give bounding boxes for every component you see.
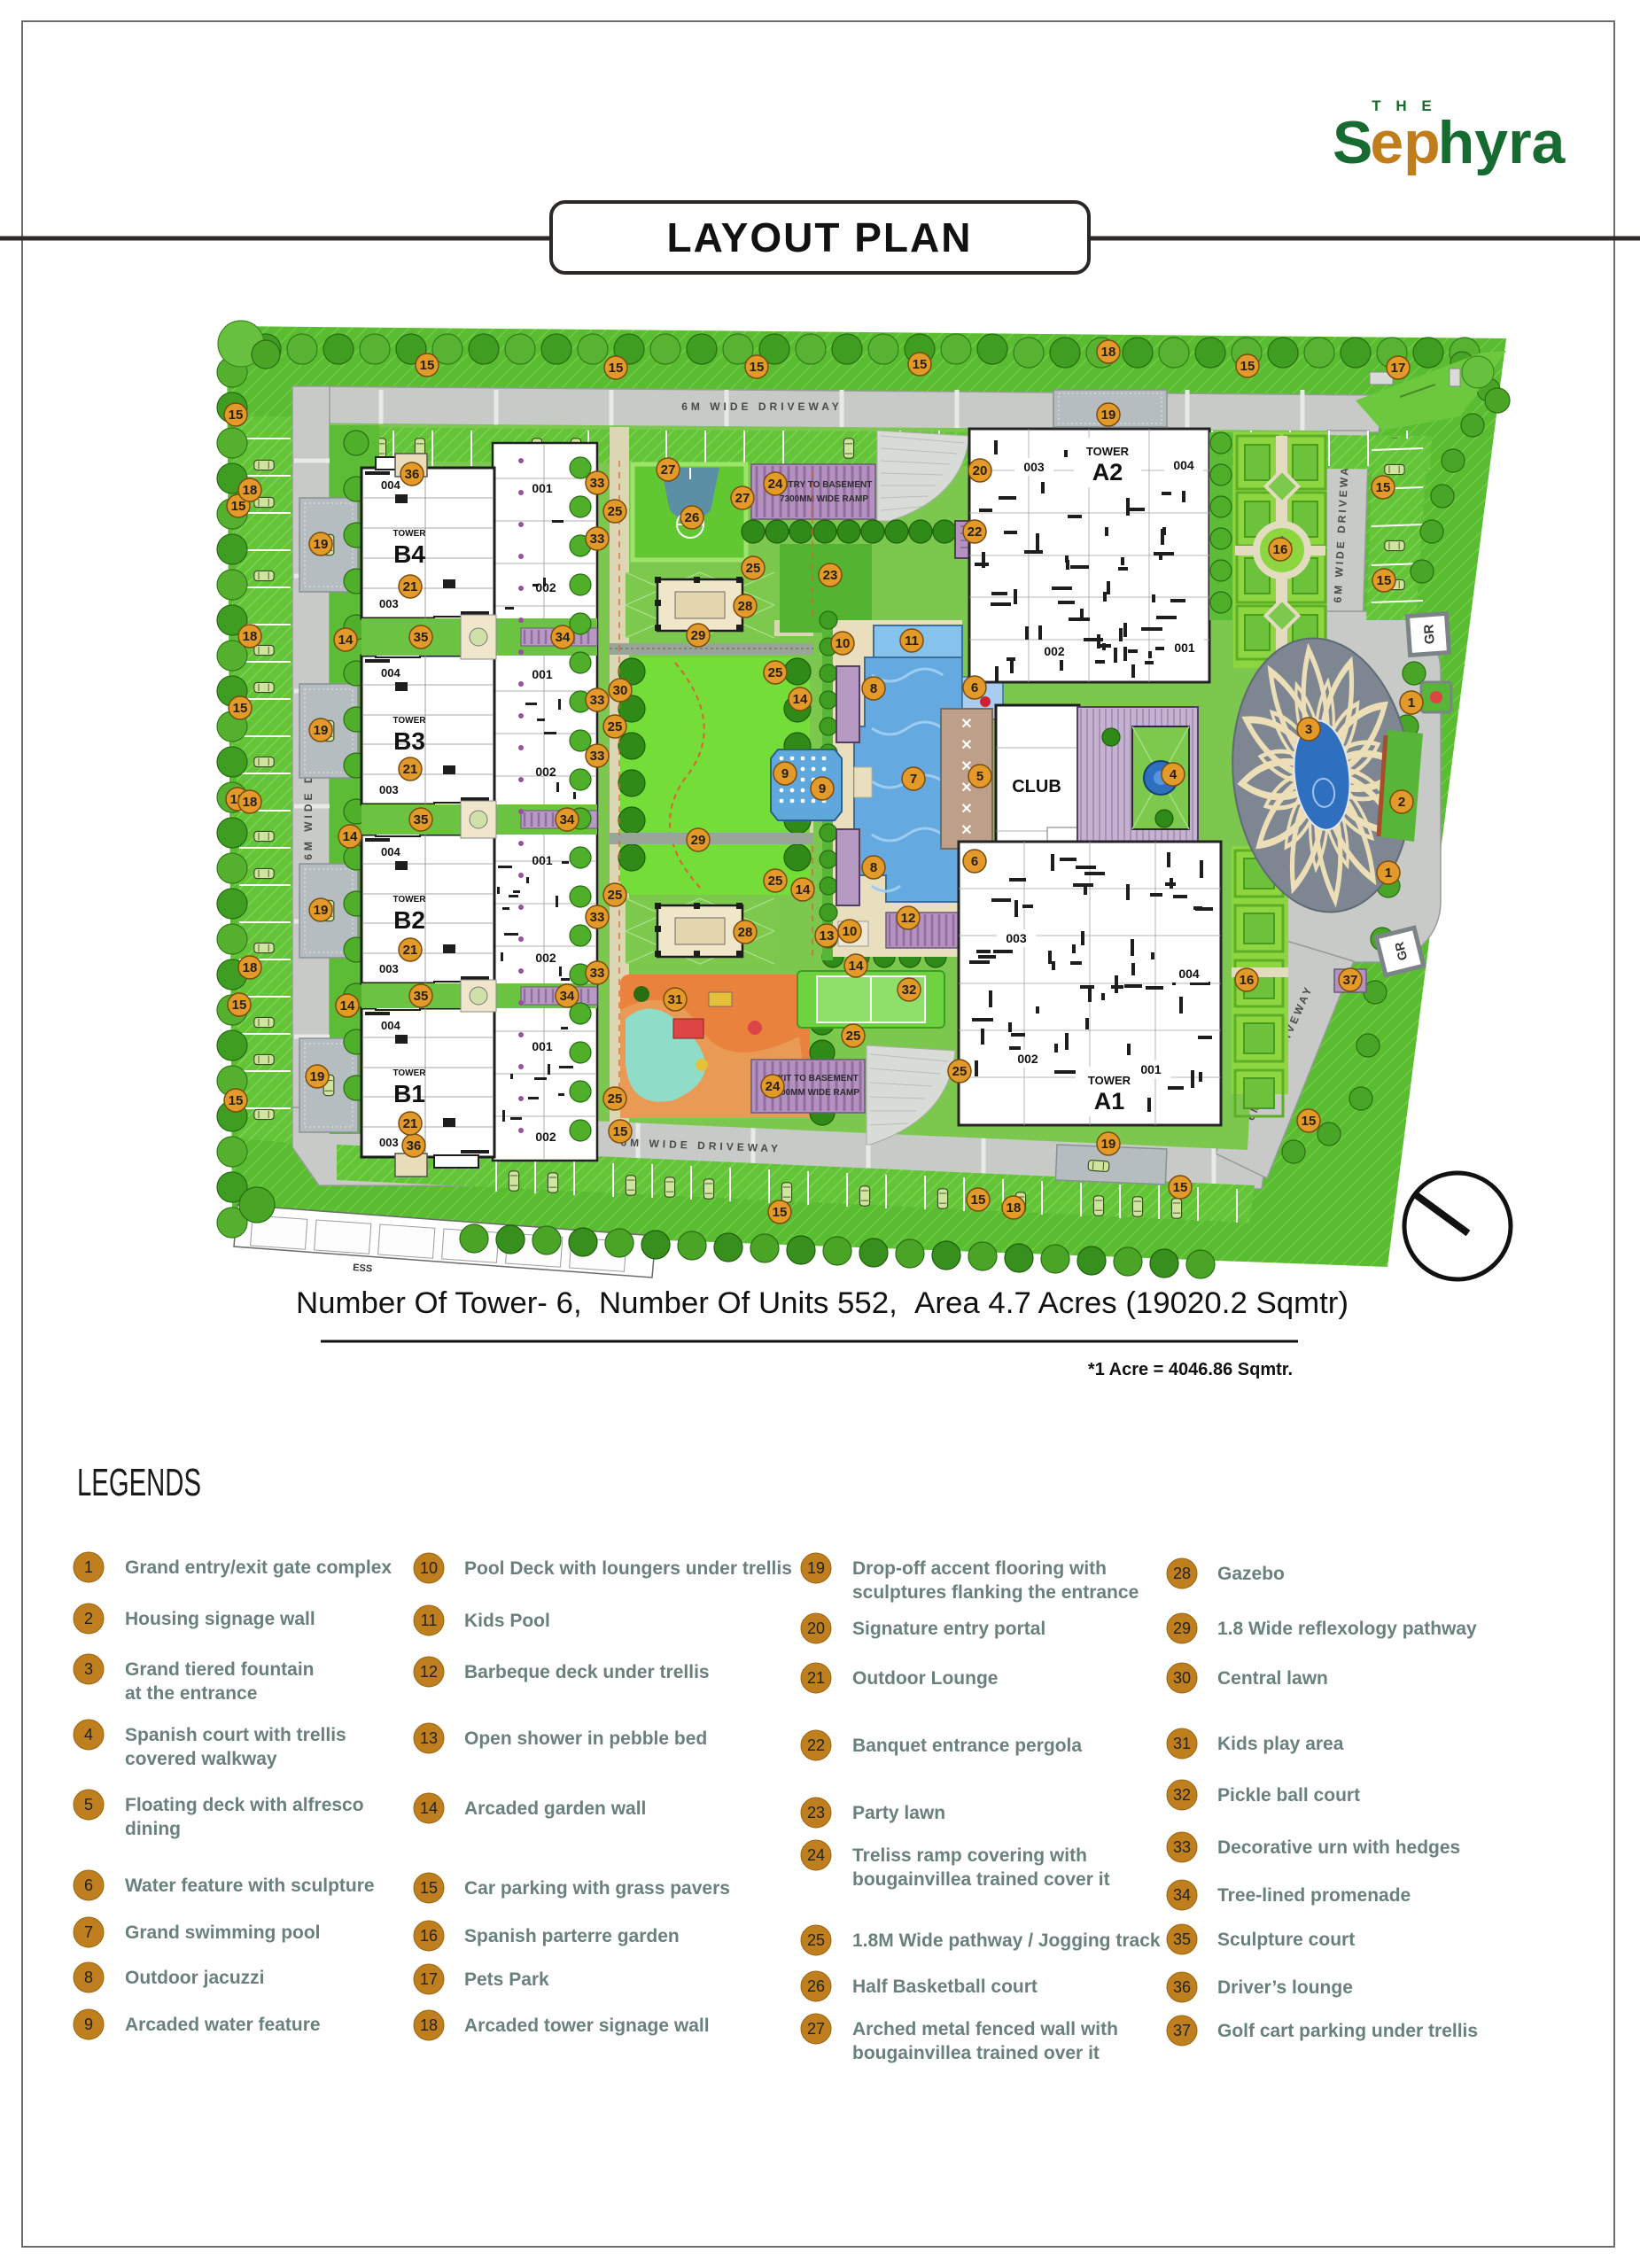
svg-text:ENTRY TO BASEMENT: ENTRY TO BASEMENT [776, 480, 873, 490]
svg-text:15: 15 [1173, 1180, 1188, 1195]
svg-text:9: 9 [781, 766, 789, 781]
svg-text:5: 5 [84, 1796, 93, 1814]
svg-text:14: 14 [340, 998, 355, 1014]
svg-text:9: 9 [84, 2016, 93, 2033]
svg-text:Outdoor Lounge: Outdoor Lounge [852, 1668, 998, 1689]
svg-text:34: 34 [556, 630, 571, 645]
svg-text:14: 14 [338, 633, 354, 648]
svg-text:10: 10 [843, 924, 858, 939]
svg-text:✕: ✕ [960, 823, 972, 838]
svg-text:002: 002 [1017, 1052, 1038, 1066]
svg-text:GR: GR [1421, 624, 1438, 645]
svg-text:19: 19 [1101, 1137, 1116, 1152]
svg-text:13: 13 [420, 1729, 438, 1747]
svg-text:14: 14 [343, 829, 358, 844]
svg-text:Kids play area: Kids play area [1217, 1734, 1344, 1754]
svg-text:ESS: ESS [353, 1262, 373, 1275]
svg-text:25: 25 [768, 874, 783, 889]
svg-text:18: 18 [243, 795, 258, 810]
svg-text:dining: dining [125, 1819, 181, 1839]
svg-text:2: 2 [1398, 795, 1405, 810]
svg-text:1.8 Wide reflexology pathway: 1.8 Wide reflexology pathway [1217, 1619, 1477, 1639]
svg-text:29: 29 [1173, 1619, 1191, 1637]
svg-text:A1: A1 [1094, 1088, 1125, 1115]
svg-text:002: 002 [535, 765, 556, 779]
svg-text:A2: A2 [1092, 459, 1123, 485]
svg-text:4: 4 [1170, 767, 1178, 782]
svg-text:003: 003 [379, 597, 399, 610]
svg-text:004: 004 [1178, 967, 1200, 981]
svg-text:33: 33 [590, 476, 605, 491]
svg-text:Kids Pool: Kids Pool [464, 1611, 550, 1631]
svg-text:8: 8 [84, 1969, 93, 1986]
svg-text:15: 15 [229, 408, 244, 423]
svg-text:004: 004 [381, 478, 400, 492]
svg-text:34: 34 [1173, 1886, 1191, 1904]
svg-text:25: 25 [608, 1091, 623, 1107]
svg-text:Spanish court with trellis: Spanish court with trellis [125, 1725, 346, 1745]
svg-text:26: 26 [807, 1977, 825, 1995]
svg-text:14: 14 [849, 959, 864, 974]
svg-text:21: 21 [403, 579, 418, 594]
svg-text:6M WIDE DRIVEWAY: 6M WIDE DRIVEWAY [681, 400, 843, 413]
svg-text:26: 26 [685, 510, 700, 525]
svg-text:Pool Deck with loungers under: Pool Deck with loungers under trellis [464, 1558, 792, 1579]
svg-text:18: 18 [420, 2016, 438, 2034]
svg-text:17: 17 [1391, 361, 1406, 376]
svg-text:3: 3 [84, 1660, 93, 1678]
svg-text:17: 17 [420, 1970, 438, 1988]
svg-text:25: 25 [952, 1064, 968, 1079]
svg-text:33: 33 [590, 749, 605, 764]
svg-text:15: 15 [1302, 1114, 1317, 1129]
svg-text:003: 003 [1006, 931, 1027, 945]
svg-text:LAYOUT PLAN: LAYOUT PLAN [667, 214, 973, 260]
svg-text:EXIT TO BASEMENT: EXIT TO BASEMENT [772, 1074, 859, 1084]
svg-text:Signature entry portal: Signature entry portal [852, 1619, 1045, 1639]
svg-text:19: 19 [314, 903, 329, 918]
svg-text:Tree-lined promenade: Tree-lined promenade [1217, 1885, 1411, 1906]
svg-text:Half Basketball court: Half Basketball court [852, 1977, 1038, 1997]
svg-text:✕: ✕ [960, 802, 972, 817]
svg-text:19: 19 [1101, 408, 1116, 423]
svg-text:15: 15 [1377, 573, 1392, 588]
svg-text:001: 001 [532, 1039, 553, 1053]
svg-text:22: 22 [968, 524, 983, 540]
svg-text:15: 15 [971, 1192, 986, 1208]
svg-text:25: 25 [608, 888, 623, 903]
svg-text:Grand tiered fountain: Grand tiered fountain [125, 1659, 315, 1680]
svg-text:7: 7 [84, 1923, 93, 1941]
svg-text:Golf cart parking under trelli: Golf cart parking under trellis [1217, 2021, 1478, 2041]
svg-text:2: 2 [84, 1610, 93, 1627]
svg-text:5: 5 [976, 769, 983, 784]
svg-text:Outdoor jacuzzi: Outdoor jacuzzi [125, 1968, 265, 1988]
svg-text:29: 29 [691, 833, 706, 848]
svg-text:11: 11 [905, 633, 919, 649]
svg-text:B1: B1 [393, 1080, 425, 1107]
svg-text:Arcaded water feature: Arcaded water feature [125, 2015, 321, 2035]
svg-text:TOWER: TOWER [393, 1068, 426, 1078]
svg-text:6: 6 [971, 854, 978, 869]
svg-text:34: 34 [560, 812, 575, 827]
svg-text:bougainvillea trained cover it: bougainvillea trained cover it [852, 1869, 1110, 1890]
svg-text:27: 27 [735, 491, 750, 506]
svg-text:001: 001 [532, 853, 553, 867]
svg-text:Treliss ramp covering with: Treliss ramp covering with [852, 1845, 1087, 1866]
svg-text:15: 15 [232, 998, 247, 1013]
svg-text:6: 6 [84, 1876, 93, 1894]
svg-text:31: 31 [1173, 1735, 1191, 1752]
svg-text:30: 30 [1173, 1669, 1191, 1687]
svg-text:33: 33 [590, 910, 605, 925]
svg-text:004: 004 [381, 666, 400, 680]
svg-text:6: 6 [971, 680, 978, 695]
svg-text:35: 35 [414, 812, 429, 827]
svg-text:Water feature with sculpture: Water feature with sculpture [125, 1876, 375, 1896]
svg-text:3: 3 [1305, 722, 1312, 737]
svg-text:002: 002 [1044, 644, 1065, 658]
svg-text:25: 25 [768, 665, 783, 680]
svg-text:32: 32 [902, 983, 917, 998]
svg-text:001: 001 [532, 481, 553, 495]
svg-text:37: 37 [1173, 2022, 1191, 2039]
svg-text:CLUB: CLUB [1012, 777, 1061, 796]
svg-text:34: 34 [560, 989, 575, 1004]
svg-text:16: 16 [1273, 542, 1288, 557]
svg-text:4: 4 [84, 1726, 93, 1744]
svg-text:8: 8 [870, 860, 877, 875]
svg-text:bougainvillea trained over it: bougainvillea trained over it [852, 2043, 1100, 2063]
svg-text:10: 10 [836, 636, 851, 651]
svg-text:18: 18 [243, 960, 258, 975]
svg-text:24: 24 [766, 1079, 781, 1094]
svg-text:12: 12 [901, 911, 916, 926]
svg-text:16: 16 [1240, 973, 1255, 988]
svg-text:14: 14 [796, 882, 811, 897]
svg-text:LEGENDS: LEGENDS [77, 1461, 201, 1504]
svg-text:002: 002 [535, 951, 556, 965]
svg-text:Arched metal fenced wall with: Arched metal fenced wall with [852, 2019, 1118, 2039]
svg-text:✕: ✕ [960, 738, 972, 753]
svg-text:28: 28 [738, 925, 753, 940]
svg-text:Open shower in pebble bed: Open shower in pebble bed [464, 1728, 707, 1749]
svg-text:15: 15 [233, 701, 248, 716]
svg-text:Drop-off accent flooring with: Drop-off accent flooring with [852, 1558, 1107, 1579]
svg-text:sculptures flanking the entran: sculptures flanking the entrance [852, 1582, 1139, 1603]
svg-text:36: 36 [407, 1138, 422, 1153]
svg-text:Grand swimming pool: Grand swimming pool [125, 1922, 321, 1943]
svg-text:25: 25 [846, 1029, 861, 1044]
svg-text:TOWER: TOWER [393, 716, 426, 726]
svg-text:14: 14 [420, 1799, 438, 1817]
svg-text:003: 003 [379, 1136, 399, 1149]
svg-text:9: 9 [819, 781, 826, 796]
svg-text:33: 33 [590, 966, 605, 981]
svg-text:003: 003 [1023, 460, 1045, 474]
svg-text:15: 15 [613, 1124, 628, 1139]
svg-text:18: 18 [1007, 1200, 1022, 1216]
svg-text:22: 22 [807, 1736, 825, 1754]
svg-text:25: 25 [746, 561, 761, 576]
svg-text:18: 18 [243, 483, 258, 498]
svg-text:001: 001 [532, 667, 553, 681]
svg-text:002: 002 [535, 580, 556, 594]
svg-text:1.8M Wide pathway / Jogging tr: 1.8M Wide pathway / Jogging track [852, 1930, 1161, 1951]
svg-text:21: 21 [807, 1669, 825, 1687]
svg-text:*1 Acre = 4046.86 Sqmtr.: *1 Acre = 4046.86 Sqmtr. [1088, 1360, 1293, 1379]
svg-text:Grand entry/exit gate complex: Grand entry/exit gate complex [125, 1557, 392, 1578]
svg-text:32: 32 [1173, 1786, 1191, 1804]
svg-text:Sculpture court: Sculpture court [1217, 1930, 1355, 1950]
svg-text:at the entrance: at the entrance [125, 1683, 257, 1704]
svg-text:19: 19 [310, 1069, 325, 1084]
svg-text:25: 25 [807, 1931, 825, 1949]
svg-text:Party lawn: Party lawn [852, 1803, 945, 1823]
svg-text:15: 15 [231, 499, 246, 514]
svg-text:21: 21 [403, 943, 418, 958]
svg-text:25: 25 [608, 719, 623, 734]
svg-text:19: 19 [314, 537, 329, 552]
svg-text:36: 36 [1173, 1978, 1191, 1996]
svg-text:15: 15 [750, 360, 765, 375]
svg-text:1: 1 [84, 1558, 93, 1576]
svg-text:31: 31 [668, 992, 683, 1007]
svg-text:15: 15 [773, 1205, 788, 1220]
svg-text:16: 16 [420, 1927, 438, 1945]
svg-text:25: 25 [608, 504, 623, 519]
svg-text:Decorative urn with hedges: Decorative urn with hedges [1217, 1837, 1460, 1858]
svg-text:Pets Park: Pets Park [464, 1969, 549, 1990]
svg-text:15: 15 [420, 358, 435, 373]
svg-text:37: 37 [1343, 973, 1358, 988]
svg-text:Number Of Tower- 6, Number Of: Number Of Tower- 6, Number Of Units 552,… [296, 1286, 1349, 1320]
svg-text:003: 003 [379, 783, 399, 796]
svg-text:29: 29 [691, 628, 706, 643]
svg-text:36: 36 [405, 467, 420, 482]
svg-text:21: 21 [403, 762, 418, 777]
svg-text:35: 35 [414, 630, 429, 645]
svg-text:20: 20 [807, 1619, 825, 1637]
svg-text:001: 001 [1174, 641, 1195, 655]
svg-text:15: 15 [913, 357, 928, 372]
svg-text:Car parking with grass pavers: Car parking with grass pavers [464, 1878, 730, 1899]
svg-text:Barbeque deck under trellis: Barbeque deck under trellis [464, 1662, 710, 1682]
svg-text:19: 19 [314, 723, 329, 738]
svg-text:20: 20 [973, 463, 988, 478]
svg-text:B4: B4 [393, 540, 425, 568]
svg-text:23: 23 [823, 568, 838, 583]
svg-text:Arcaded garden wall: Arcaded garden wall [464, 1798, 646, 1819]
svg-text:TOWER: TOWER [1086, 445, 1130, 458]
svg-text:15: 15 [229, 1093, 244, 1108]
svg-text:Gazebo: Gazebo [1217, 1564, 1285, 1584]
svg-text:21: 21 [403, 1116, 418, 1131]
svg-text:15: 15 [609, 361, 624, 376]
svg-text:covered walkway: covered walkway [125, 1749, 277, 1769]
svg-text:7300MM WIDE RAMP: 7300MM WIDE RAMP [780, 494, 868, 504]
svg-text:15: 15 [1376, 480, 1391, 495]
svg-text:TOWER: TOWER [1088, 1074, 1131, 1087]
svg-text:33: 33 [590, 532, 605, 547]
svg-text:002: 002 [535, 1130, 556, 1144]
svg-text:33: 33 [1173, 1838, 1191, 1856]
svg-text:10: 10 [420, 1559, 438, 1577]
svg-text:Housing signage wall: Housing signage wall [125, 1609, 315, 1629]
svg-text:28: 28 [738, 599, 753, 614]
svg-text:23: 23 [807, 1804, 825, 1821]
svg-text:27: 27 [807, 2020, 825, 2038]
svg-text:11: 11 [421, 1612, 438, 1629]
svg-text:7: 7 [910, 772, 917, 787]
svg-text:003: 003 [379, 962, 399, 975]
svg-text:Sephyra: Sephyra [1333, 109, 1566, 176]
svg-text:004: 004 [381, 845, 400, 858]
svg-text:Driver’s lounge: Driver’s lounge [1217, 1977, 1353, 1998]
svg-text:B3: B3 [393, 727, 425, 755]
svg-text:1: 1 [1385, 866, 1392, 881]
svg-text:15: 15 [1240, 359, 1255, 374]
svg-text:14: 14 [793, 692, 808, 707]
svg-text:004: 004 [1173, 458, 1194, 472]
svg-text:Central lawn: Central lawn [1217, 1668, 1328, 1689]
svg-text:8: 8 [870, 681, 877, 696]
svg-text:27: 27 [661, 462, 676, 478]
svg-text:28: 28 [1173, 1565, 1191, 1582]
svg-text:Arcaded tower signage wall: Arcaded tower signage wall [464, 2016, 710, 2036]
svg-text:Pickle ball court: Pickle ball court [1217, 1785, 1360, 1806]
svg-text:24: 24 [768, 477, 783, 492]
svg-text:24: 24 [807, 1846, 825, 1864]
svg-text:B2: B2 [393, 906, 425, 934]
svg-text:18: 18 [1101, 345, 1116, 360]
svg-text:35: 35 [1173, 1930, 1191, 1948]
svg-text:15: 15 [420, 1879, 438, 1897]
svg-text:1: 1 [1408, 695, 1415, 711]
svg-text:35: 35 [414, 989, 429, 1004]
svg-text:✕: ✕ [960, 717, 972, 732]
svg-text:001: 001 [1140, 1062, 1162, 1076]
svg-text:30: 30 [613, 683, 628, 698]
svg-text:TOWER: TOWER [393, 529, 426, 539]
svg-text:18: 18 [243, 629, 258, 644]
svg-text:Banquet entrance pergola: Banquet entrance pergola [852, 1736, 1082, 1756]
svg-text:13: 13 [820, 928, 835, 944]
svg-text:Spanish parterre garden: Spanish parterre garden [464, 1926, 680, 1946]
svg-text:Floating deck with alfresco: Floating deck with alfresco [125, 1795, 364, 1815]
svg-text:33: 33 [590, 693, 605, 708]
svg-text:004: 004 [381, 1019, 400, 1032]
svg-text:TOWER: TOWER [393, 895, 426, 905]
svg-text:12: 12 [420, 1663, 438, 1681]
svg-text:19: 19 [807, 1559, 825, 1577]
